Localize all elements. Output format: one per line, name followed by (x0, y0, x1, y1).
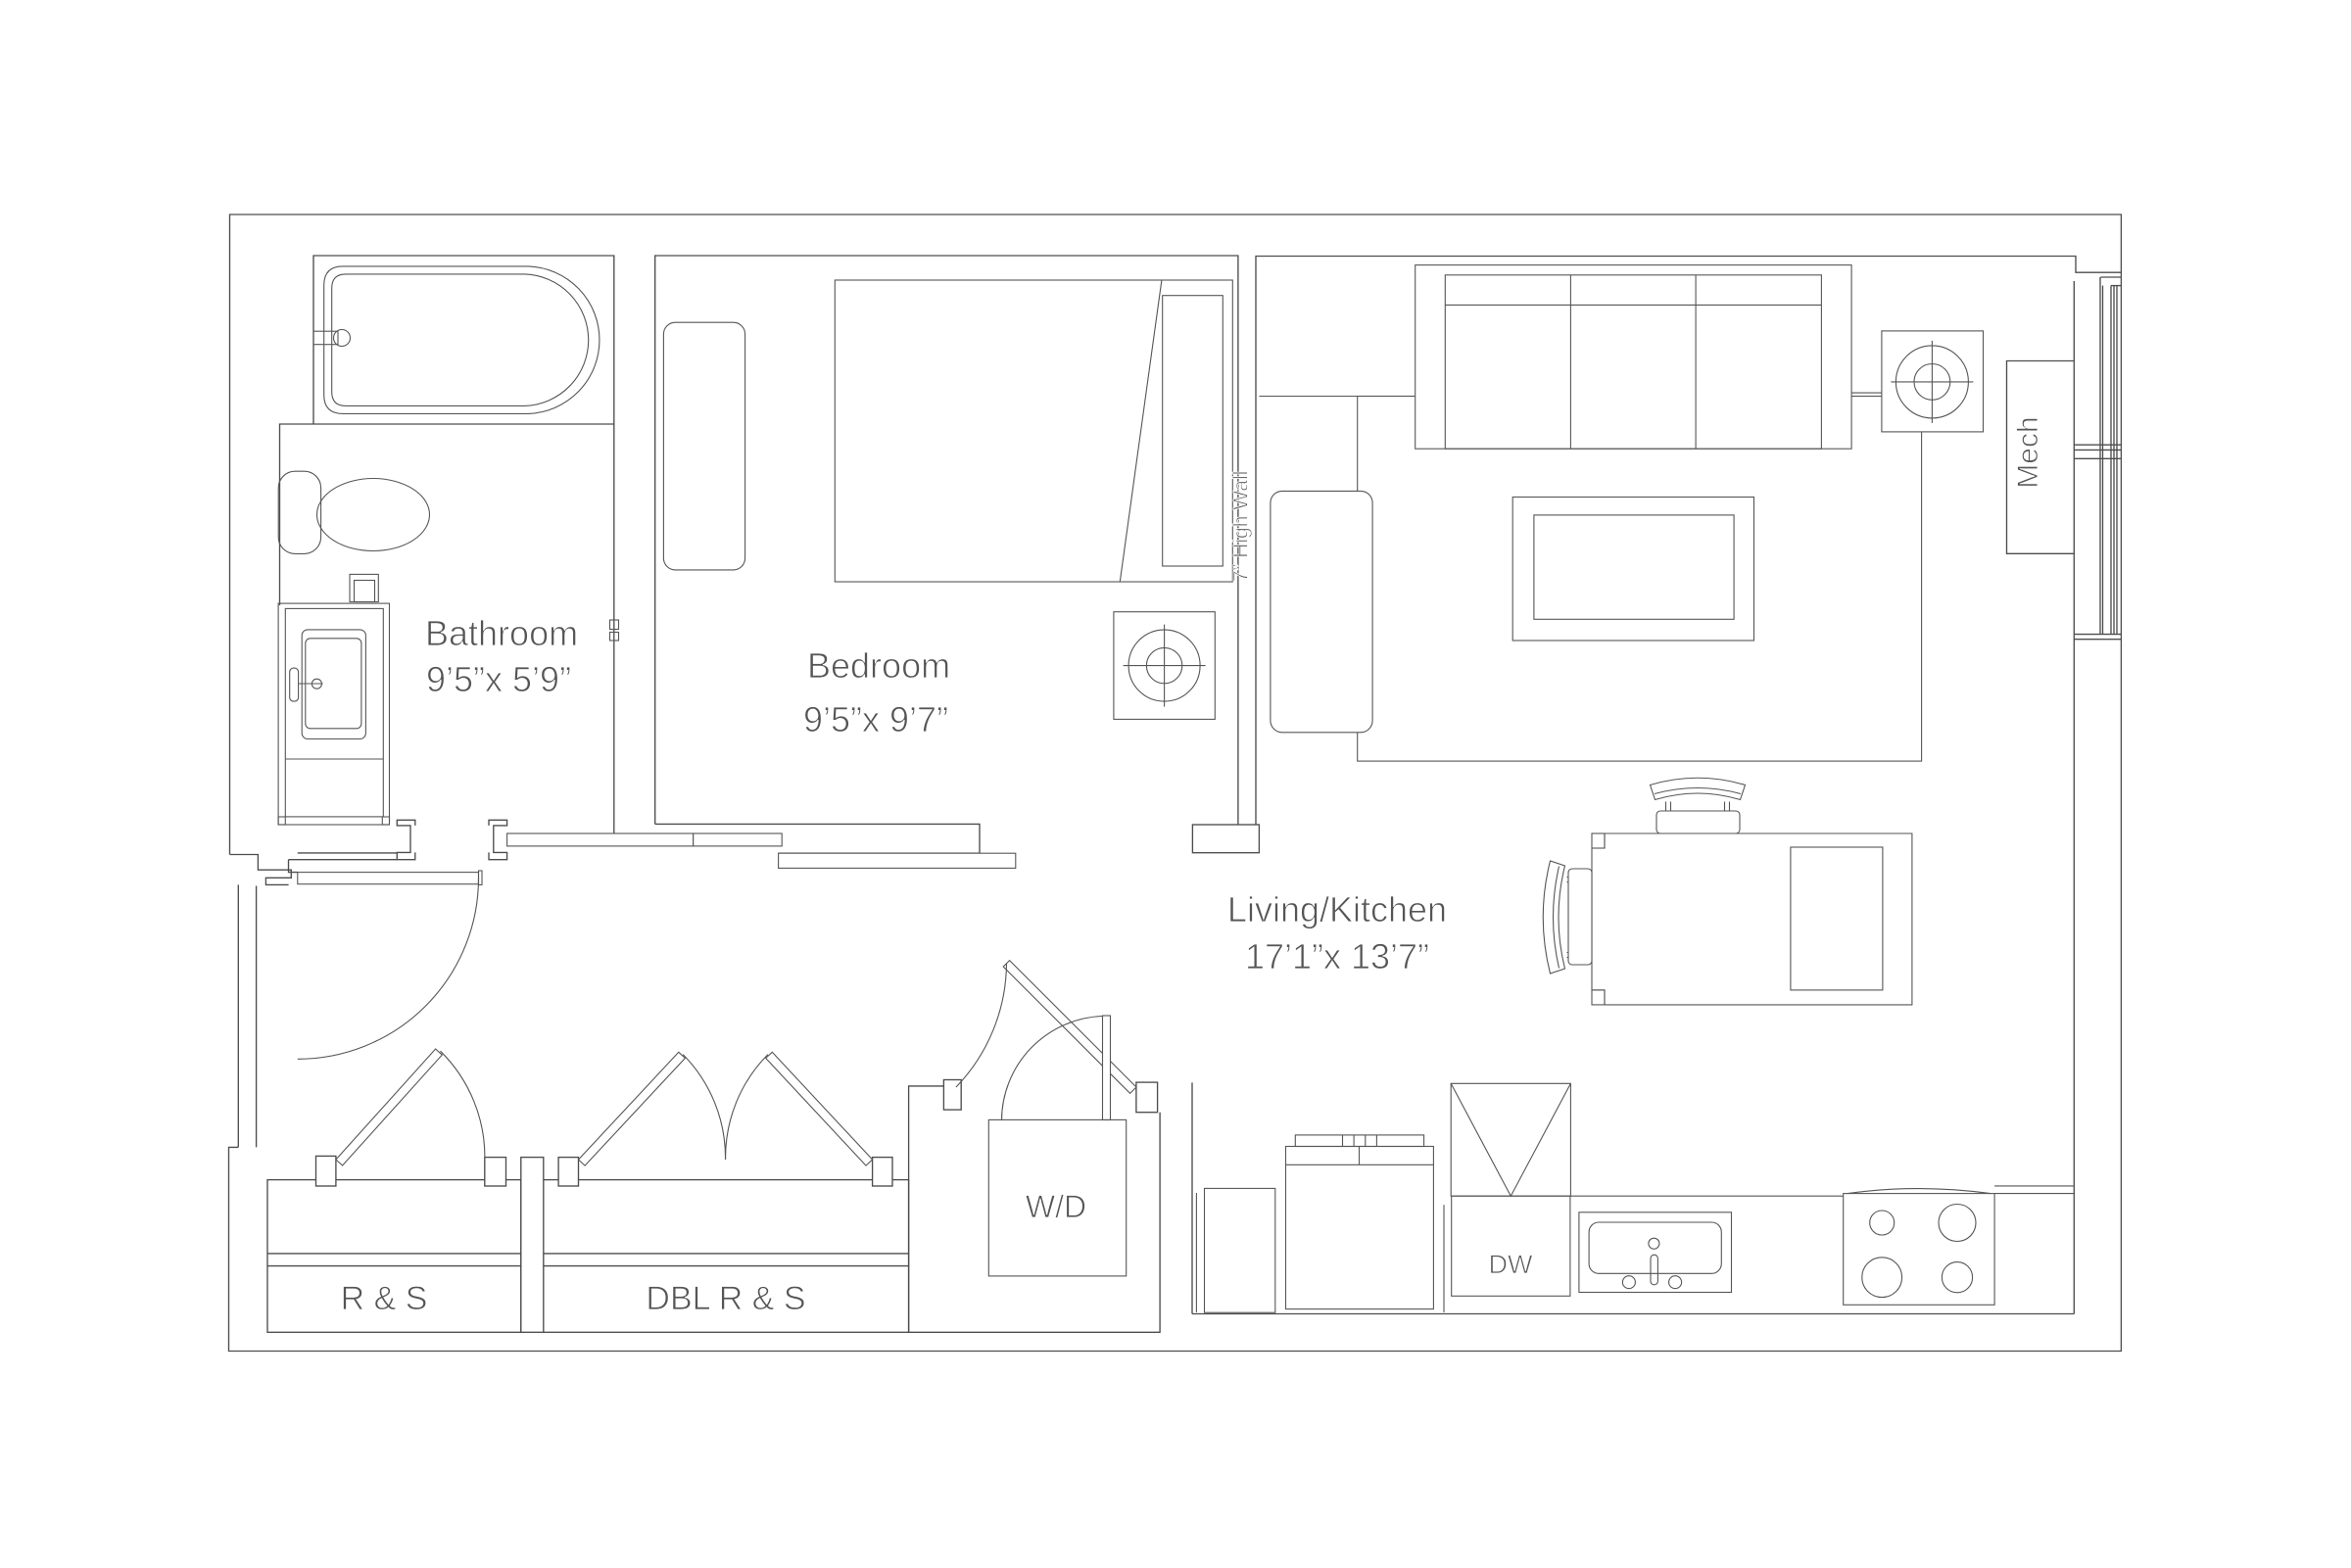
svg-text:17’1”x 13’7”: 17’1”x 13’7” (1245, 936, 1429, 976)
svg-text:Mech: Mech (2012, 416, 2044, 488)
svg-text:7” High Wall: 7” High Wall (1230, 471, 1253, 583)
svg-text:W/D: W/D (1026, 1189, 1086, 1224)
svg-text:DW: DW (1489, 1250, 1533, 1279)
svg-text:9’5”x 5’9”: 9’5”x 5’9” (426, 659, 571, 699)
svg-text:Bathroom: Bathroom (425, 613, 578, 653)
svg-text:Bedroom: Bedroom (807, 645, 950, 686)
svg-text:DBL R & S: DBL R & S (646, 1280, 805, 1317)
svg-text:Living/Kitchen: Living/Kitchen (1227, 889, 1447, 929)
svg-text:9’5”x 9’7”: 9’5”x 9’7” (803, 699, 948, 739)
svg-text:R & S: R & S (341, 1280, 428, 1317)
